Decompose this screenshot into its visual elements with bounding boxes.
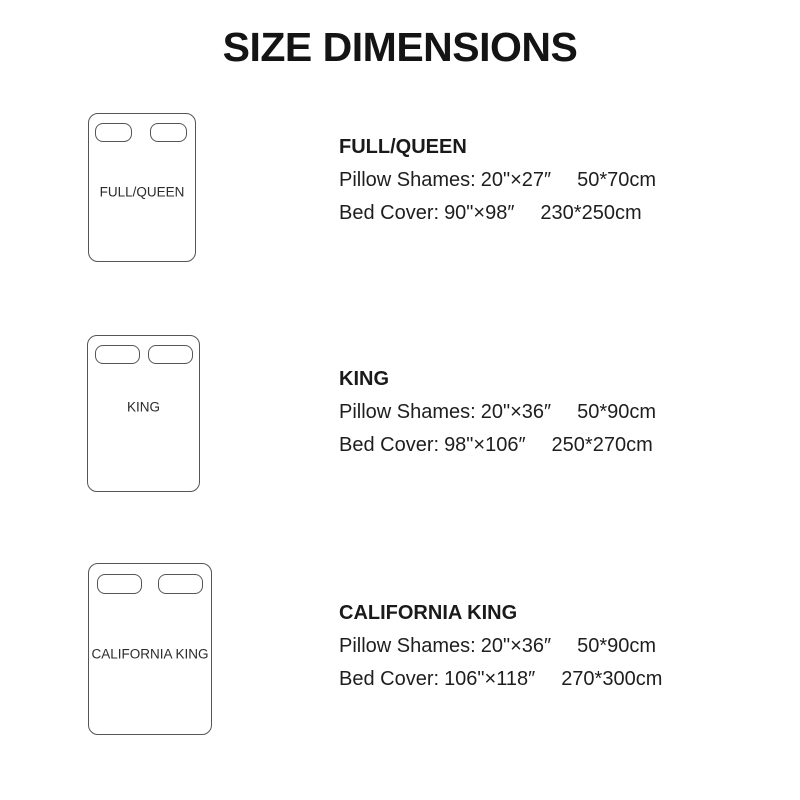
pillow-inches-value: 20"×36″ bbox=[481, 401, 551, 423]
pillow-icon bbox=[95, 345, 140, 364]
bed-cover-line: Bed Cover:106"×118″270*300cm bbox=[339, 663, 662, 696]
bed-diagram-label: FULL/QUEEN bbox=[89, 184, 195, 199]
bed-diagram-label: CALIFORNIA KING bbox=[89, 647, 211, 662]
cover-inches-value: 106"×118″ bbox=[444, 668, 535, 690]
cover-cm-value: 230*250cm bbox=[540, 202, 641, 224]
bed-cover-line: Bed Cover:98"×106″250*270cm bbox=[339, 429, 656, 462]
pillow-inches-value: 20"×27″ bbox=[481, 169, 551, 191]
size-info-california-king: CALIFORNIA KING Pillow Shames:20"×36″50*… bbox=[339, 597, 662, 696]
bed-diagram-label: KING bbox=[88, 400, 199, 415]
pillow-shames-label: Pillow Shames: bbox=[339, 635, 476, 657]
pillow-icon bbox=[158, 574, 203, 594]
bed-cover-line: Bed Cover:90"×98″230*250cm bbox=[339, 197, 656, 230]
size-name: CALIFORNIA KING bbox=[339, 597, 662, 630]
cover-cm-value: 250*270cm bbox=[552, 434, 653, 456]
bed-cover-label: Bed Cover: bbox=[339, 668, 439, 690]
cover-inches-value: 98"×106″ bbox=[444, 434, 525, 456]
pillow-icon bbox=[148, 345, 193, 364]
pillow-shames-label: Pillow Shames: bbox=[339, 169, 476, 191]
pillow-cm-value: 50*90cm bbox=[577, 401, 656, 423]
size-info-king: KING Pillow Shames:20"×36″50*90cm Bed Co… bbox=[339, 363, 656, 462]
pillow-icon bbox=[97, 574, 142, 594]
pillow-icon bbox=[95, 123, 132, 142]
cover-inches-value: 90"×98″ bbox=[444, 202, 514, 224]
bed-diagram-king: KING bbox=[87, 335, 200, 492]
bed-cover-label: Bed Cover: bbox=[339, 202, 439, 224]
size-name: FULL/QUEEN bbox=[339, 131, 656, 164]
pillow-cm-value: 50*90cm bbox=[577, 635, 656, 657]
pillow-shames-line: Pillow Shames:20"×27″50*70cm bbox=[339, 164, 656, 197]
cover-cm-value: 270*300cm bbox=[561, 668, 662, 690]
size-name: KING bbox=[339, 363, 656, 396]
page-title: SIZE DIMENSIONS bbox=[0, 24, 800, 71]
bed-diagram-full-queen: FULL/QUEEN bbox=[88, 113, 196, 262]
bed-diagram-california-king: CALIFORNIA KING bbox=[88, 563, 212, 735]
size-info-full-queen: FULL/QUEEN Pillow Shames:20"×27″50*70cm … bbox=[339, 131, 656, 230]
pillow-shames-line: Pillow Shames:20"×36″50*90cm bbox=[339, 630, 662, 663]
bed-cover-label: Bed Cover: bbox=[339, 434, 439, 456]
pillow-cm-value: 50*70cm bbox=[577, 169, 656, 191]
pillow-icon bbox=[150, 123, 187, 142]
pillow-shames-label: Pillow Shames: bbox=[339, 401, 476, 423]
pillow-shames-line: Pillow Shames:20"×36″50*90cm bbox=[339, 396, 656, 429]
pillow-inches-value: 20"×36″ bbox=[481, 635, 551, 657]
